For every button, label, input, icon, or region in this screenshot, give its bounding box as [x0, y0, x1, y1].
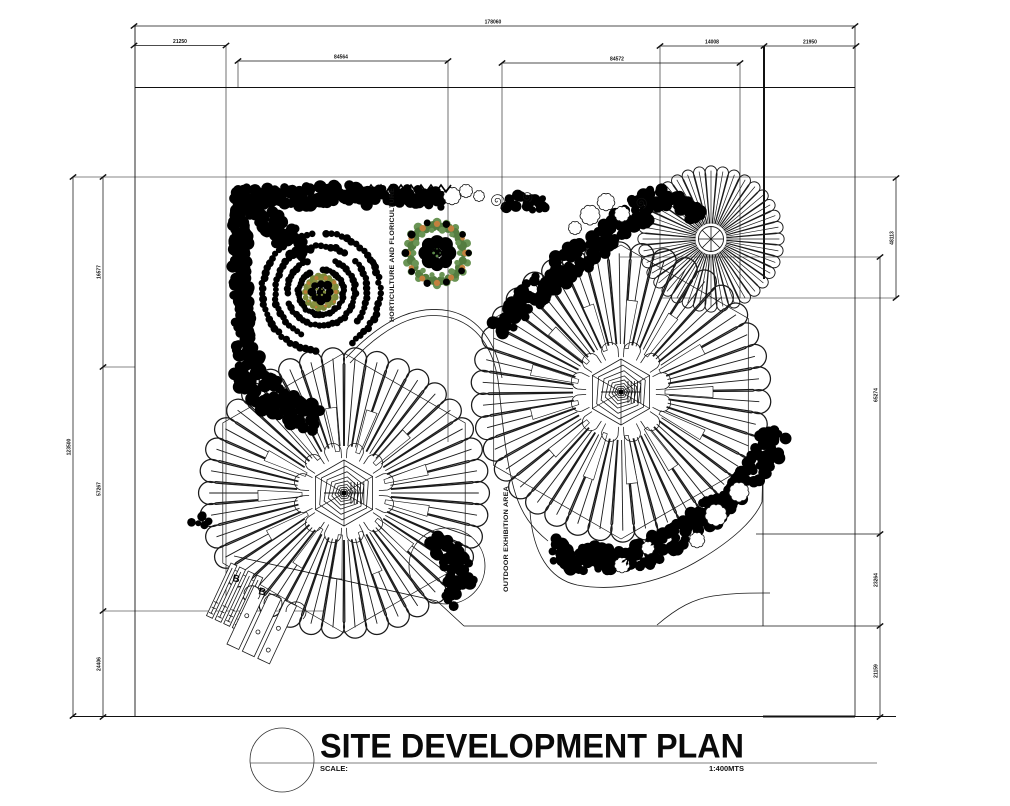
svg-text:HORTICULTURE AND FLORICULTURE: HORTICULTURE AND FLORICULTURE — [389, 188, 396, 322]
svg-text:23264: 23264 — [874, 573, 880, 587]
svg-text:178060: 178060 — [485, 20, 502, 26]
svg-text:21250: 21250 — [173, 39, 187, 45]
svg-text:57267: 57267 — [97, 482, 103, 496]
svg-text:21950: 21950 — [803, 40, 817, 46]
svg-text:65274: 65274 — [874, 388, 880, 402]
svg-text:14008: 14008 — [705, 40, 719, 46]
svg-text:24406: 24406 — [97, 657, 103, 671]
svg-text:SCALE:: SCALE: — [320, 764, 348, 773]
svg-text:21159: 21159 — [874, 664, 880, 678]
svg-text:84572: 84572 — [610, 57, 624, 63]
svg-text:SITE DEVELOPMENT PLAN: SITE DEVELOPMENT PLAN — [320, 728, 744, 766]
svg-text:84564: 84564 — [334, 55, 348, 61]
svg-text:OUTDOOR EXHIBITION AREA: OUTDOOR EXHIBITION AREA — [503, 486, 510, 592]
svg-text:16577: 16577 — [97, 265, 103, 279]
svg-text:1:400MTS: 1:400MTS — [709, 764, 744, 773]
svg-text:48113: 48113 — [890, 231, 896, 245]
svg-text:123500: 123500 — [67, 438, 73, 455]
